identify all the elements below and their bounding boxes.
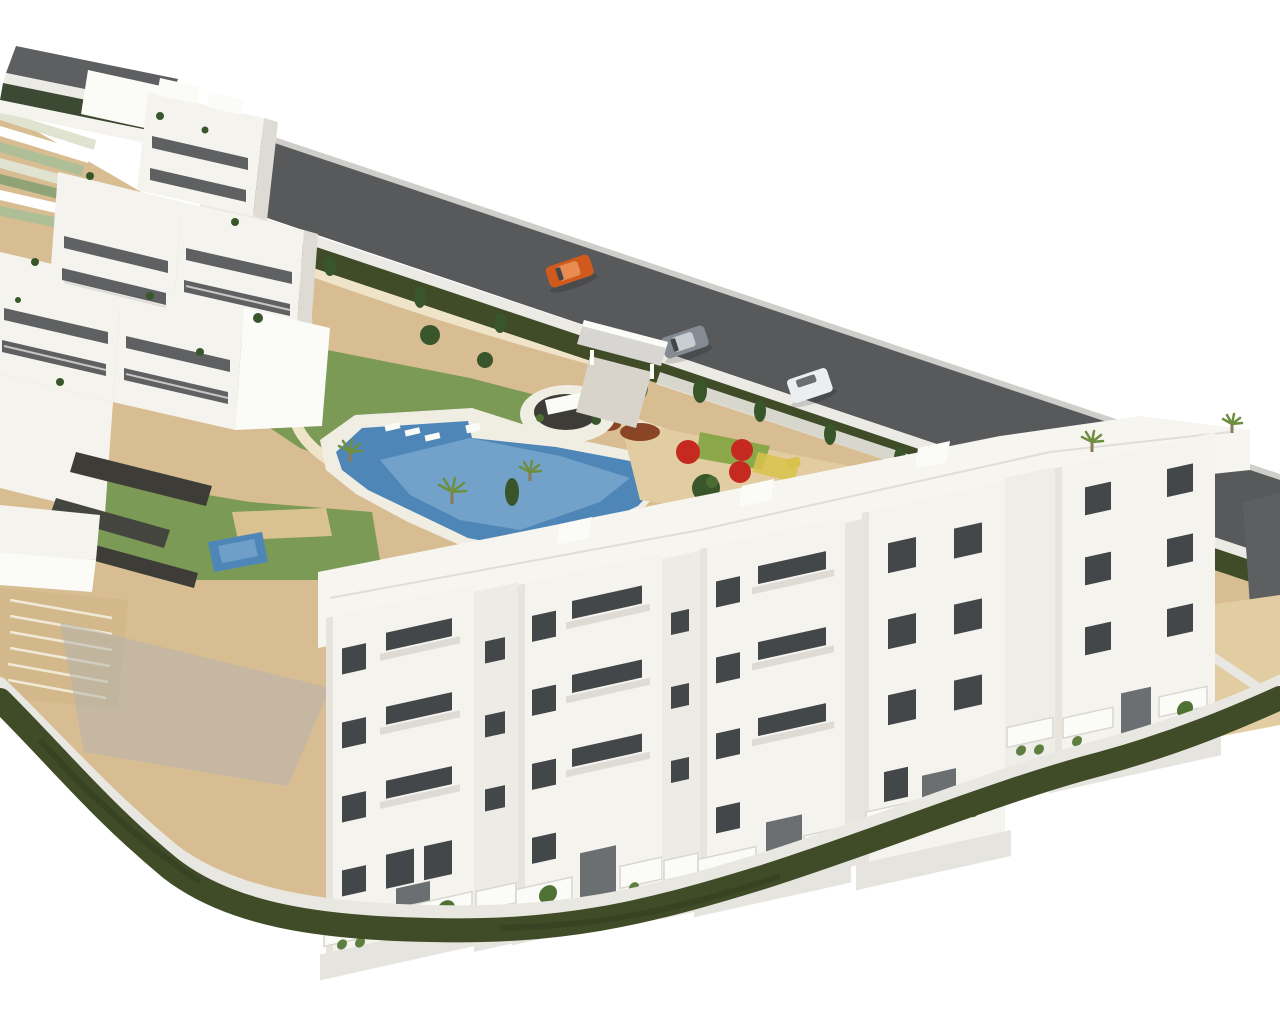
stairwell-gap-2 (662, 551, 700, 919)
west-low-buildings (0, 505, 100, 592)
render-canvas (0, 0, 1280, 1024)
stairwell-court (1005, 467, 1055, 768)
stairwell-gap-1 (474, 582, 518, 952)
aerial-render (0, 0, 1280, 1024)
stairwell-gap-3 (845, 519, 862, 868)
